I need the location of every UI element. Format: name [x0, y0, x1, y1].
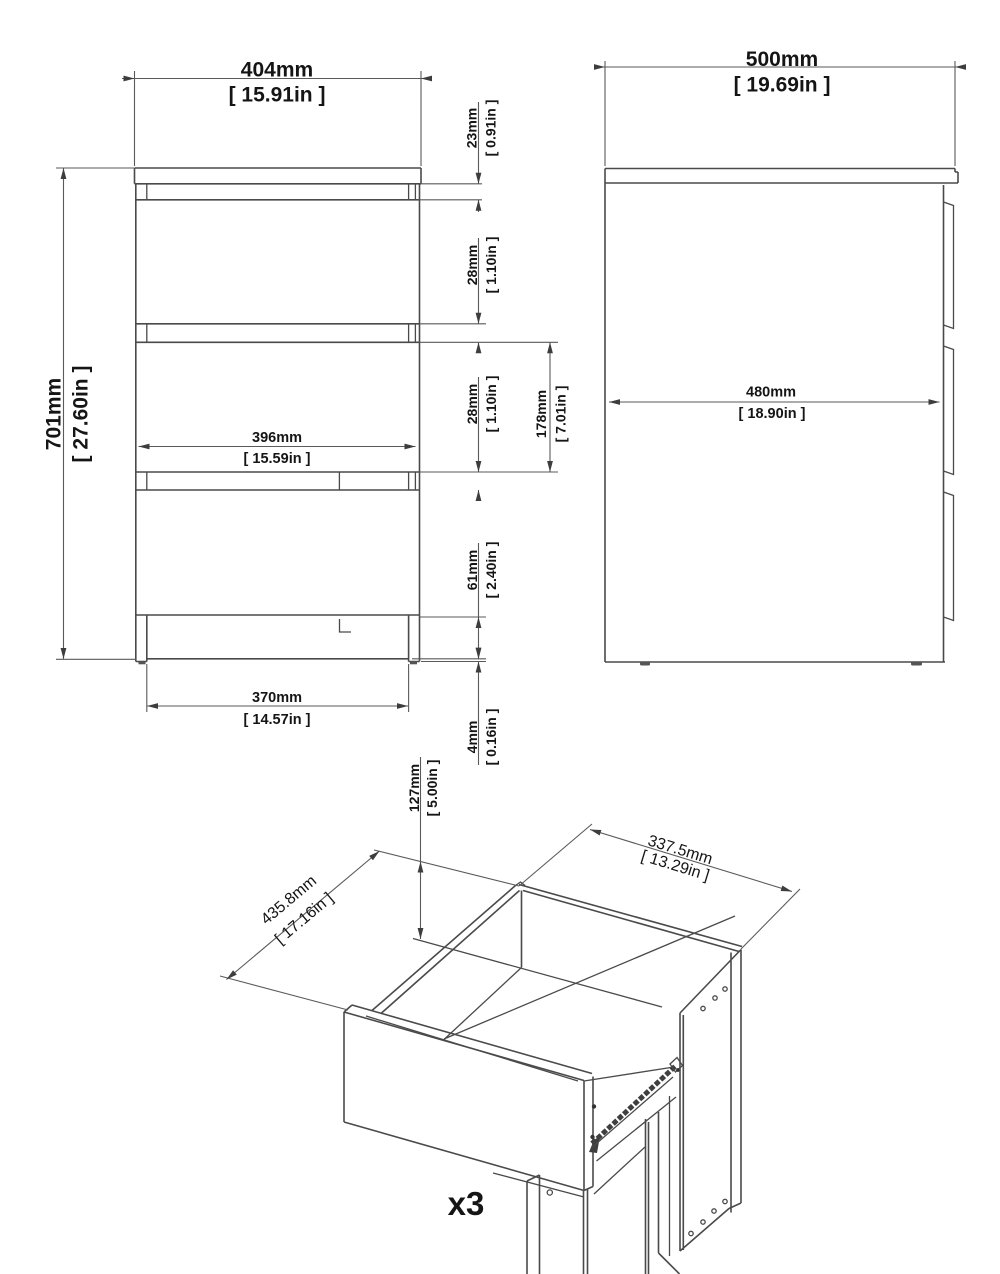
svg-text:x3: x3 [448, 1185, 485, 1222]
svg-text:[ 1.10in ]: [ 1.10in ] [483, 376, 499, 433]
svg-text:[ 15.59in ]: [ 15.59in ] [244, 451, 311, 467]
svg-text:404mm: 404mm [241, 59, 313, 82]
svg-text:[ 19.69in ]: [ 19.69in ] [734, 74, 831, 97]
svg-text:28mm: 28mm [464, 245, 480, 285]
svg-text:396mm: 396mm [252, 430, 302, 446]
svg-text:[ 7.01in ]: [ 7.01in ] [553, 386, 569, 443]
svg-text:[ 18.90in ]: [ 18.90in ] [739, 406, 806, 422]
svg-text:701mm: 701mm [43, 378, 66, 450]
svg-text:370mm: 370mm [252, 690, 302, 706]
svg-text:[ 1.10in ]: [ 1.10in ] [483, 237, 499, 294]
svg-text:[ 2.40in ]: [ 2.40in ] [483, 542, 499, 599]
svg-text:[ 27.60in ]: [ 27.60in ] [70, 366, 93, 463]
svg-text:480mm: 480mm [746, 385, 796, 401]
svg-text:500mm: 500mm [746, 48, 818, 71]
svg-text:[ 0.16in ]: [ 0.16in ] [483, 709, 499, 766]
svg-text:[ 0.91in ]: [ 0.91in ] [483, 100, 499, 157]
svg-text:[ 15.91in ]: [ 15.91in ] [229, 84, 326, 107]
svg-text:4mm: 4mm [464, 721, 480, 754]
svg-text:61mm: 61mm [464, 550, 480, 590]
svg-text:28mm: 28mm [464, 384, 480, 424]
svg-text:178mm: 178mm [533, 390, 549, 438]
svg-text:127mm: 127mm [406, 764, 422, 812]
svg-text:[ 14.57in ]: [ 14.57in ] [244, 712, 311, 728]
svg-text:[ 5.00in ]: [ 5.00in ] [424, 760, 440, 817]
svg-text:23mm: 23mm [464, 108, 480, 148]
